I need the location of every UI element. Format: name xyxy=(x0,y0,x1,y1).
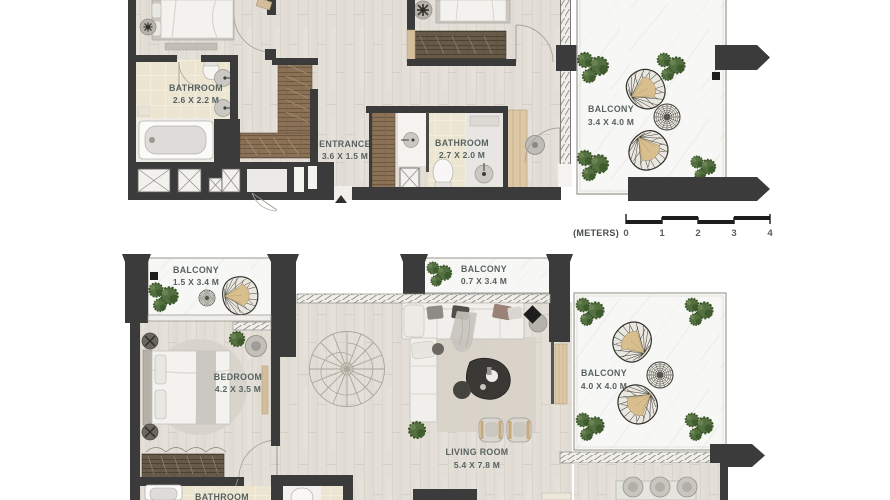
svg-text:BATHROOM: BATHROOM xyxy=(169,83,223,93)
svg-text:LIVING ROOM: LIVING ROOM xyxy=(446,447,509,457)
svg-text:2.6 X 2.2 M: 2.6 X 2.2 M xyxy=(173,95,219,105)
svg-text:(METERS): (METERS) xyxy=(573,228,619,238)
svg-text:BALCONY: BALCONY xyxy=(461,264,507,274)
svg-text:1.5 X 3.4 M: 1.5 X 3.4 M xyxy=(173,277,219,287)
svg-text:0: 0 xyxy=(623,228,628,239)
svg-text:4.0 X 4.0 M: 4.0 X 4.0 M xyxy=(581,381,627,391)
svg-text:ENTRANCE: ENTRANCE xyxy=(319,139,371,149)
svg-text:3.6 X 1.5 M: 3.6 X 1.5 M xyxy=(322,151,368,161)
svg-text:BATHROOM: BATHROOM xyxy=(195,492,249,500)
svg-text:4.2 X 3.5 M: 4.2 X 3.5 M xyxy=(215,384,261,394)
svg-text:0.7 X 3.4 M: 0.7 X 3.4 M xyxy=(461,276,507,286)
svg-text:4: 4 xyxy=(767,228,773,239)
svg-text:BALCONY: BALCONY xyxy=(588,104,634,114)
svg-text:BALCONY: BALCONY xyxy=(581,368,627,378)
svg-text:BEDROOM: BEDROOM xyxy=(214,372,262,382)
svg-text:3: 3 xyxy=(731,228,736,239)
svg-text:BALCONY: BALCONY xyxy=(173,265,219,275)
svg-text:BATHROOM: BATHROOM xyxy=(435,138,489,148)
svg-text:2.7 X 2.0 M: 2.7 X 2.0 M xyxy=(439,150,485,160)
svg-text:2: 2 xyxy=(695,228,700,239)
svg-text:5.4 X 7.8 M: 5.4 X 7.8 M xyxy=(454,460,500,470)
svg-text:3.4 X 4.0 M: 3.4 X 4.0 M xyxy=(588,117,634,127)
svg-text:1: 1 xyxy=(659,228,665,239)
